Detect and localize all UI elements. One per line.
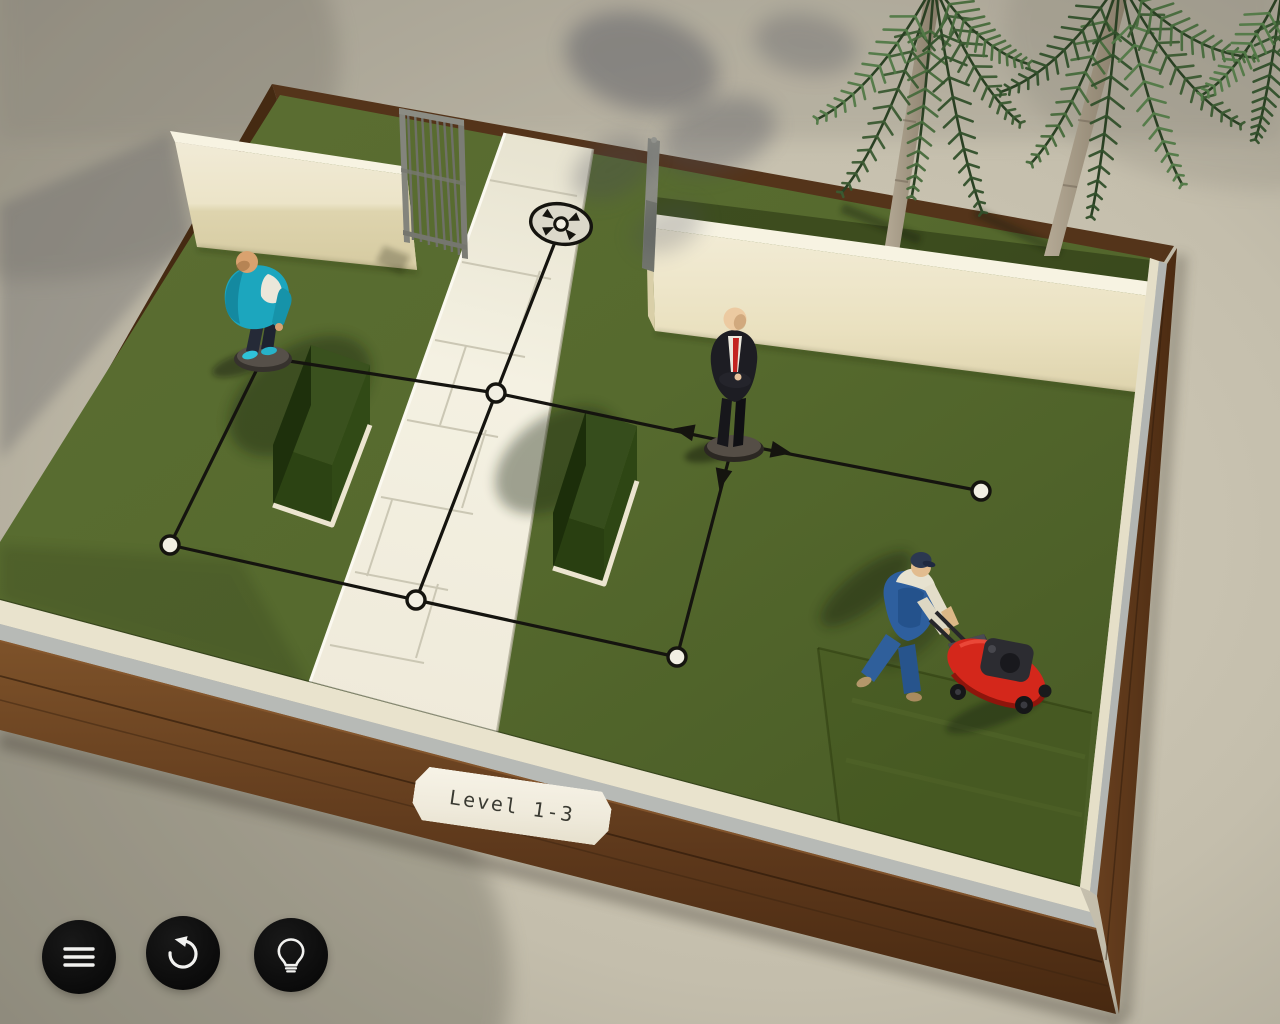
exit-center (554, 217, 568, 231)
frond-leaflet (1087, 216, 1091, 218)
frond-leaflet (1202, 43, 1204, 57)
frond-leaflet (1037, 146, 1045, 147)
frond-leaflet (844, 102, 845, 112)
frond-leaflet (1020, 123, 1021, 128)
frond-leaflet (1057, 101, 1072, 102)
lawnmower-wheel-3 (1039, 685, 1052, 698)
lightbulb-icon (269, 933, 313, 977)
frond-leaflet (858, 150, 870, 151)
frond-leaflet (1221, 113, 1222, 121)
menu-button[interactable] (42, 920, 116, 994)
agent-hands (735, 374, 742, 381)
frond-leaflet (1211, 106, 1212, 116)
undo-icon (161, 931, 205, 975)
lawnmower-pull-cap (988, 645, 996, 653)
frond-leaflet (1251, 139, 1256, 140)
frond-leaflet (1240, 24, 1263, 25)
frond-leaflet (1251, 132, 1257, 134)
lawnmower-hub-2 (1021, 702, 1028, 709)
node-n-cross[interactable] (487, 384, 505, 402)
frond-leaflet (1032, 154, 1038, 155)
right-gate-cap (651, 137, 657, 143)
frond-leaflet (1052, 114, 1066, 115)
node-n-left[interactable] (161, 536, 179, 554)
frond-leaflet (992, 46, 993, 60)
diorama-scene (0, 0, 1280, 1024)
frond-leaflet (1192, 38, 1193, 53)
game-screen: Level 1-3 (0, 0, 1280, 1024)
hint-button[interactable] (254, 918, 328, 992)
frond-leaflet (1223, 59, 1238, 61)
groundskeeper-bib (898, 588, 924, 628)
frond-leaflet (1167, 54, 1186, 56)
frond-leaflet (863, 136, 877, 137)
civilian-hand (275, 323, 283, 331)
frond-leaflet (1014, 59, 1015, 67)
node-n-east-end[interactable] (972, 482, 990, 500)
frond-leaflet (870, 53, 889, 55)
lawnmower-engine-top (1000, 653, 1020, 673)
frond-leaflet (961, 43, 982, 45)
frond-leaflet (1232, 43, 1251, 44)
frond-leaflet (908, 196, 912, 198)
frond-leaflet (837, 192, 842, 193)
frond-leaflet (1000, 102, 1010, 103)
frond-leaflet (1021, 62, 1022, 68)
frond-leaflet (1168, 154, 1178, 156)
frond-leaflet (1012, 117, 1013, 123)
frond-leaflet (877, 42, 898, 43)
frond-leaflet (1027, 162, 1032, 163)
frond-leaflet (987, 86, 1001, 87)
frond-leaflet (884, 30, 907, 31)
frond-leaflet (1007, 55, 1008, 65)
frond-leaflet (983, 41, 985, 56)
hamburger-icon (57, 935, 101, 979)
frond-leaflet (1245, 13, 1269, 14)
frond-leaflet (1171, 26, 1172, 45)
frond-leaflet (1158, 42, 1179, 43)
lawnmower-hub (955, 689, 961, 695)
restart-button[interactable] (146, 916, 220, 990)
node-n-south-e[interactable] (668, 648, 686, 666)
frond-leaflet (1037, 73, 1038, 85)
level-label: Level 1-3 (448, 785, 577, 827)
frond-leaflet (1046, 66, 1048, 80)
node-n-path-s[interactable] (407, 591, 425, 609)
frond-leaflet (1227, 51, 1244, 52)
